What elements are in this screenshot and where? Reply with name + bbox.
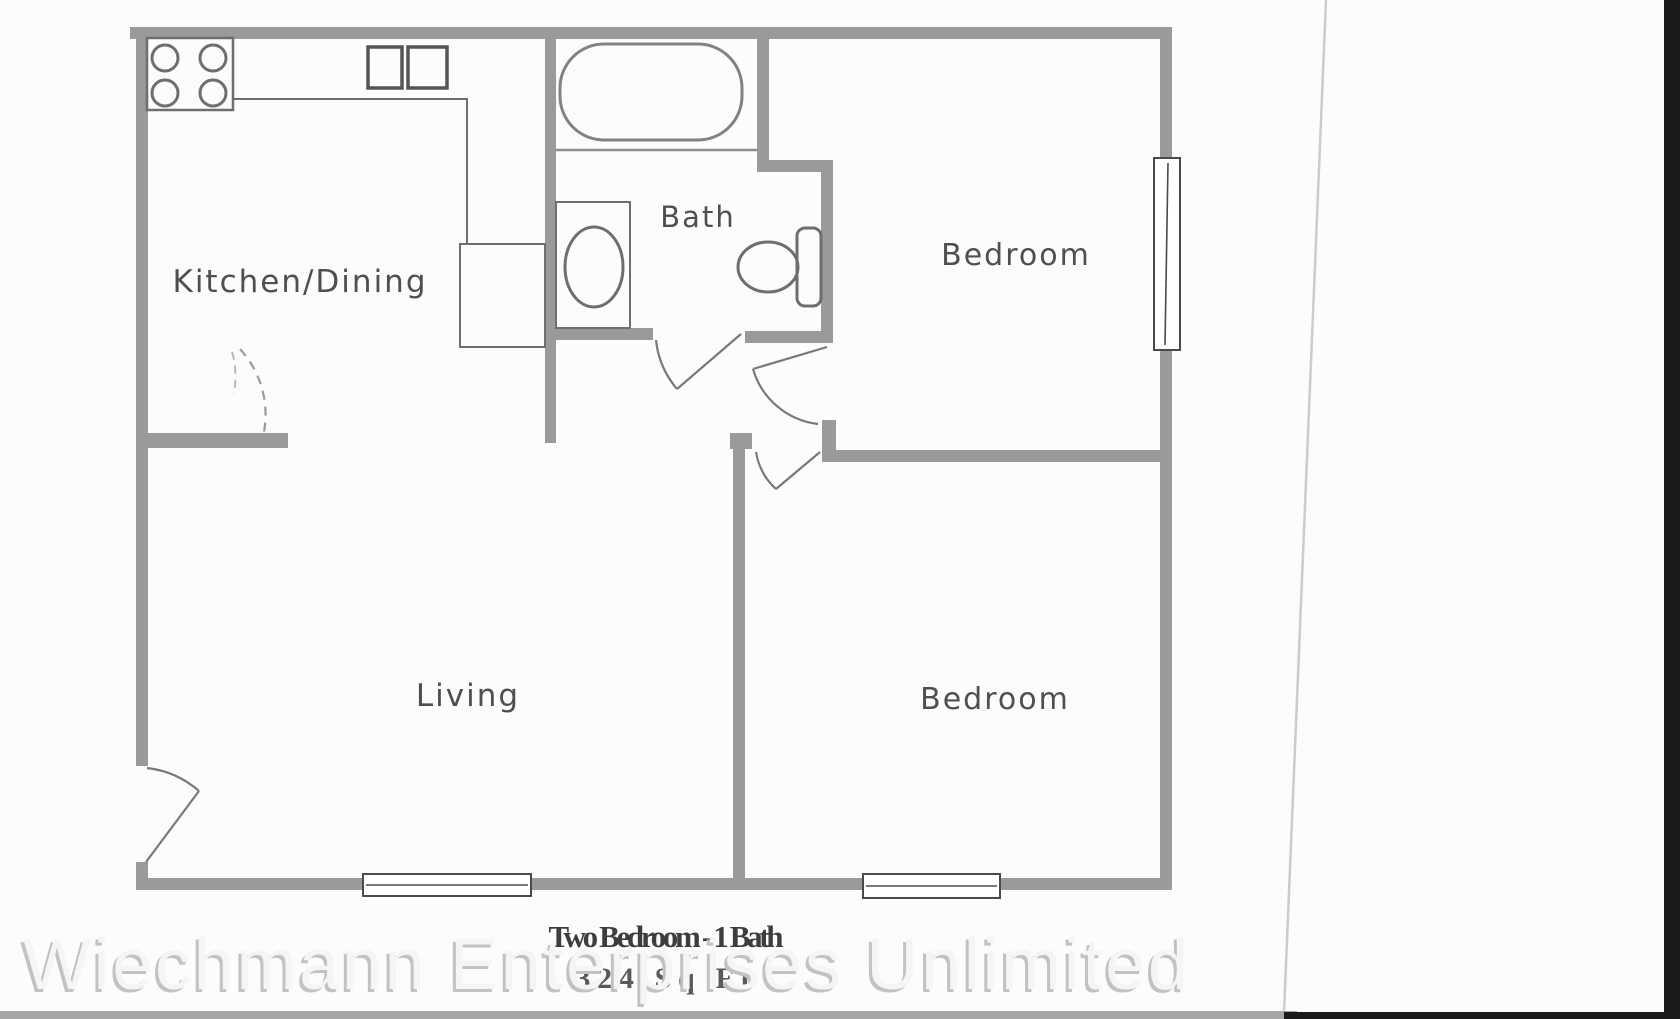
scan-bottom-edge-dark <box>1284 1012 1680 1019</box>
wall-kitchen-living-stub <box>148 433 288 448</box>
wall-living-bedroom-divider <box>733 449 745 890</box>
room-label-bedroom-top: Bedroom <box>941 238 1091 273</box>
window-right-wall <box>1154 158 1180 350</box>
wall-living-divider-cap <box>730 433 752 449</box>
wall-bath-right-upper <box>757 27 769 172</box>
wall-bedroom-divider-stub <box>822 420 836 462</box>
wall-segment-bottom <box>136 878 1172 890</box>
room-label-bath: Bath <box>660 200 735 234</box>
window-bottom-right <box>863 874 1000 898</box>
floor-plan-canvas: Kitchen/Dining Bath Bedroom Living Bedro… <box>0 0 1680 1019</box>
scan-bottom-bar <box>0 1011 1297 1019</box>
scan-right-edge-black <box>1664 0 1680 1019</box>
wall-bedroom-divider <box>822 450 1172 462</box>
wall-segment-top <box>130 27 1172 39</box>
wall-segment-left <box>136 27 148 766</box>
room-label-kitchen-dining: Kitchen/Dining <box>172 264 427 300</box>
wall-bath-right-lower <box>821 160 833 343</box>
wall-toilet-alcove-bottom <box>745 331 833 343</box>
scanned-floor-plan-page: Kitchen/Dining Bath Bedroom Living Bedro… <box>0 0 1680 1019</box>
watermark-text: Wiechmann Enterprises Unlimited <box>23 925 1191 1005</box>
watermark: Wiechmann Enterprises Unlimited Wiechman… <box>20 925 1191 1008</box>
window-bottom-left <box>363 874 531 896</box>
wall-kitchen-bath-divider <box>545 27 556 443</box>
paper-background <box>0 0 1680 1019</box>
room-label-bedroom-bottom: Bedroom <box>920 682 1070 717</box>
wall-bath-bottom-left <box>545 328 653 340</box>
room-label-living: Living <box>416 678 520 714</box>
